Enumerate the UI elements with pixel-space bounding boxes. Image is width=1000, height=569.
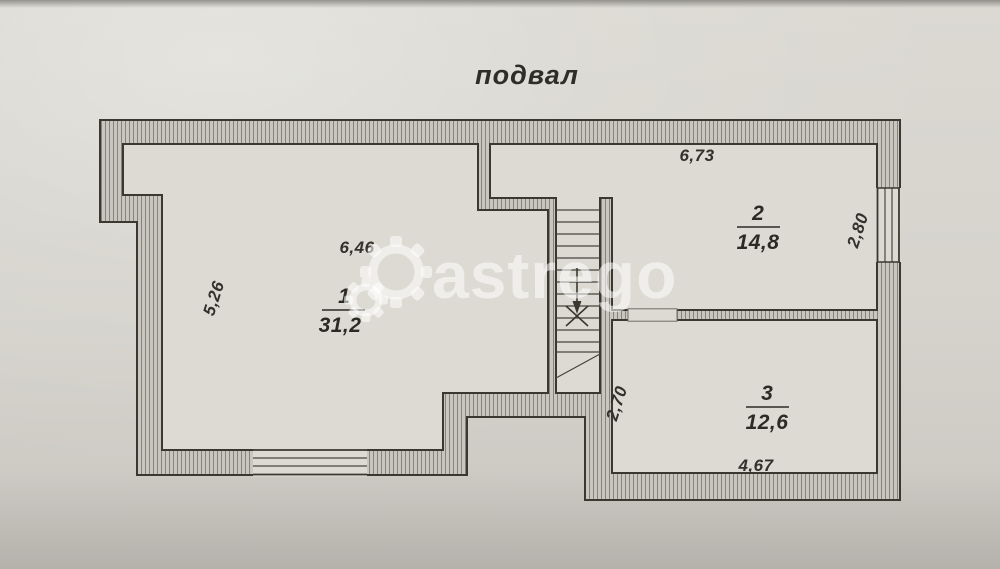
watermark-text: astrego	[432, 238, 677, 312]
window-right	[876, 188, 901, 262]
room-2-area: 14,8	[737, 231, 780, 254]
room-1-area: 31,2	[319, 314, 362, 337]
room-2-number: 2	[751, 202, 764, 225]
room-3-floor	[612, 320, 877, 473]
room-1-width-label: 6,46	[339, 238, 374, 257]
room-2-width-label: 6,73	[679, 146, 714, 165]
floorplan-svg: подвал	[0, 0, 1000, 569]
plan-title: подвал	[475, 60, 579, 90]
room-3-area: 12,6	[746, 411, 789, 434]
window-bottom	[253, 449, 367, 477]
floorplan-photo: подвал	[0, 0, 1000, 569]
room-3-width-label: 4,67	[737, 456, 774, 475]
room-3-number: 3	[761, 382, 773, 405]
